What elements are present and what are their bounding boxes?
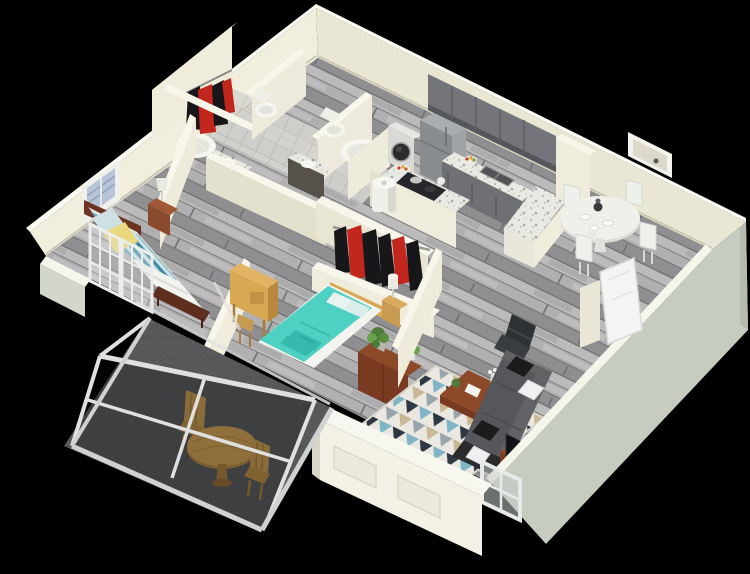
table-pedestal <box>594 238 606 252</box>
coffee-pot-lid <box>596 199 601 204</box>
plant-leaves <box>372 340 380 348</box>
niche-object <box>654 159 659 164</box>
coffee-pot <box>594 203 603 212</box>
toilet-seat <box>327 126 341 135</box>
plate <box>580 214 591 220</box>
water-heater-cap <box>382 181 387 186</box>
floor-plan-render <box>0 0 750 574</box>
lamp-top <box>388 274 398 279</box>
chair-back <box>626 180 642 206</box>
fruit <box>472 158 475 161</box>
pot <box>425 186 436 192</box>
chair-back <box>576 234 592 262</box>
washer-door-glass <box>396 146 402 152</box>
faucet <box>232 157 235 160</box>
floor-plan-image <box>0 0 750 574</box>
pot <box>410 177 422 184</box>
plant-leaves <box>379 333 389 343</box>
kettle <box>437 177 445 185</box>
small-plant <box>452 379 461 388</box>
open-entry-door <box>600 258 642 344</box>
fruit <box>469 156 472 159</box>
fruit <box>404 167 407 170</box>
fruit <box>397 166 400 169</box>
fruit <box>401 165 404 168</box>
chair-back <box>640 222 656 250</box>
entry-wall-stub <box>580 280 600 348</box>
table-top <box>560 196 640 240</box>
lamp-shade <box>156 178 168 191</box>
plate <box>603 220 614 226</box>
desk-door <box>250 292 264 304</box>
desk-side <box>268 281 278 322</box>
fruit <box>465 157 468 160</box>
flower <box>488 370 492 374</box>
faucet <box>312 159 315 162</box>
water-heater <box>372 177 396 212</box>
toilet-seat <box>259 106 273 115</box>
